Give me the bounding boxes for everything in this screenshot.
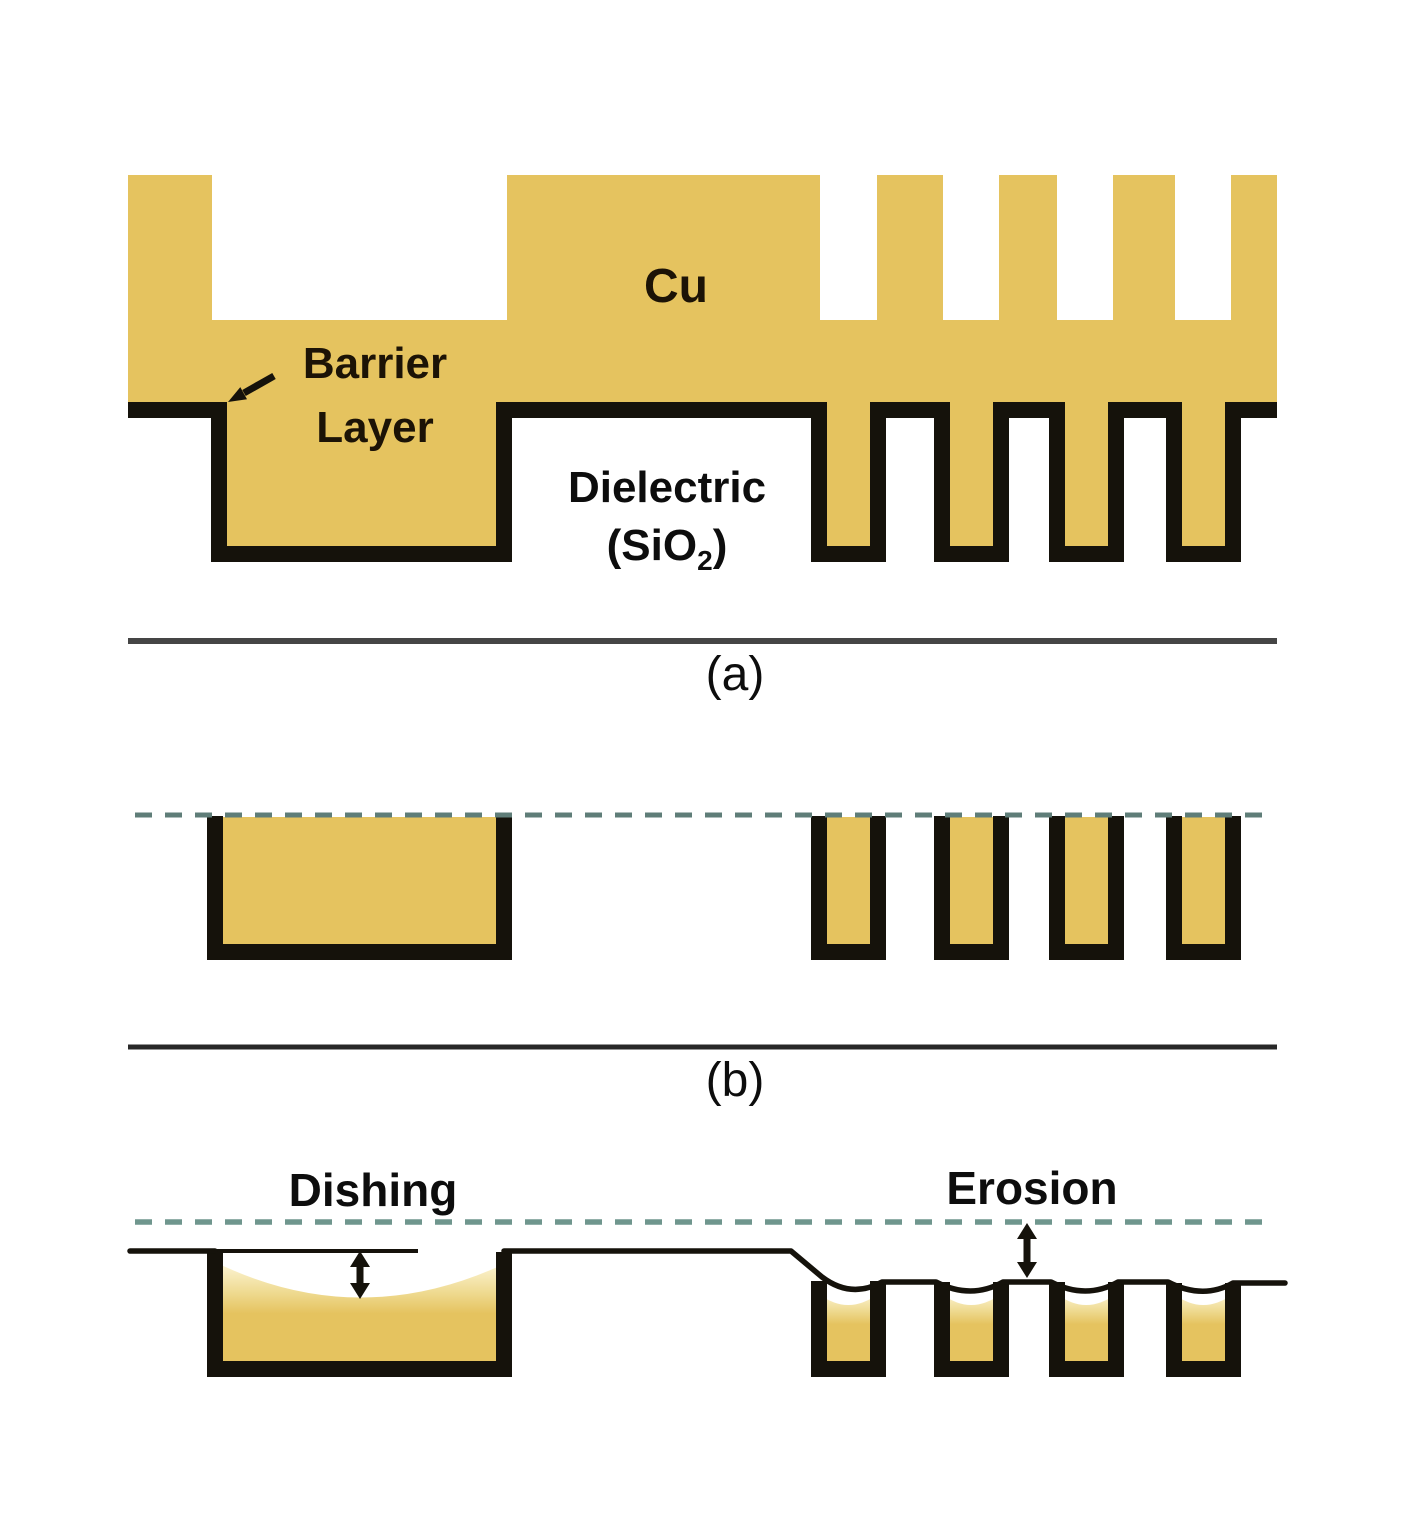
cmp-process-diagram: Cu Barrier Layer Dielectric (SiO2) (a) (…	[0, 0, 1405, 1536]
copper-eroded-fill-c3	[1057, 1294, 1116, 1369]
copper-narrow-trench-fill-b4	[1174, 817, 1233, 952]
copper-narrow-trench-fill-b2	[942, 817, 1001, 952]
barrier-layer-label-line2: Layer	[316, 403, 433, 452]
panel-c-dishing-erosion: Dishing Erosion	[130, 1162, 1285, 1369]
copper-narrow-trench-fill-b1	[819, 817, 878, 952]
copper-wide-trench-fill-b	[215, 817, 504, 952]
copper-narrow-trench-fill-b3	[1057, 817, 1116, 952]
copper-eroded-fill-c1	[819, 1294, 878, 1369]
panel-b-caption: (b)	[706, 1054, 765, 1107]
cu-label: Cu	[644, 260, 708, 313]
copper-narrow-trench-fill-a1	[819, 400, 878, 554]
dishing-arrow-up-head-icon	[350, 1251, 370, 1267]
dielectric-label-line2: (SiO2)	[607, 521, 728, 576]
panel-a-before-cmp: Cu Barrier Layer Dielectric (SiO2)	[128, 175, 1277, 576]
copper-eroded-fill-c4	[1174, 1294, 1233, 1369]
erosion-arrow-up-head-icon	[1017, 1223, 1037, 1239]
dishing-label: Dishing	[289, 1164, 458, 1216]
copper-narrow-trench-fill-a2	[942, 400, 1001, 554]
diagram-canvas: Cu Barrier Layer Dielectric (SiO2) (a) (…	[0, 0, 1405, 1536]
dishing-arrow-down-head-icon	[350, 1283, 370, 1299]
copper-narrow-trench-fill-a4	[1174, 400, 1233, 554]
erosion-arrow-down-head-icon	[1017, 1262, 1037, 1278]
barrier-layer-label-line1: Barrier	[303, 339, 447, 388]
panel-a-caption: (a)	[706, 648, 765, 701]
erosion-label: Erosion	[946, 1162, 1117, 1214]
panel-b-ideal-polish	[135, 815, 1265, 952]
copper-narrow-trench-fill-a3	[1057, 400, 1116, 554]
dielectric-label-line1: Dielectric	[568, 463, 766, 512]
copper-eroded-fill-c2	[942, 1294, 1001, 1369]
